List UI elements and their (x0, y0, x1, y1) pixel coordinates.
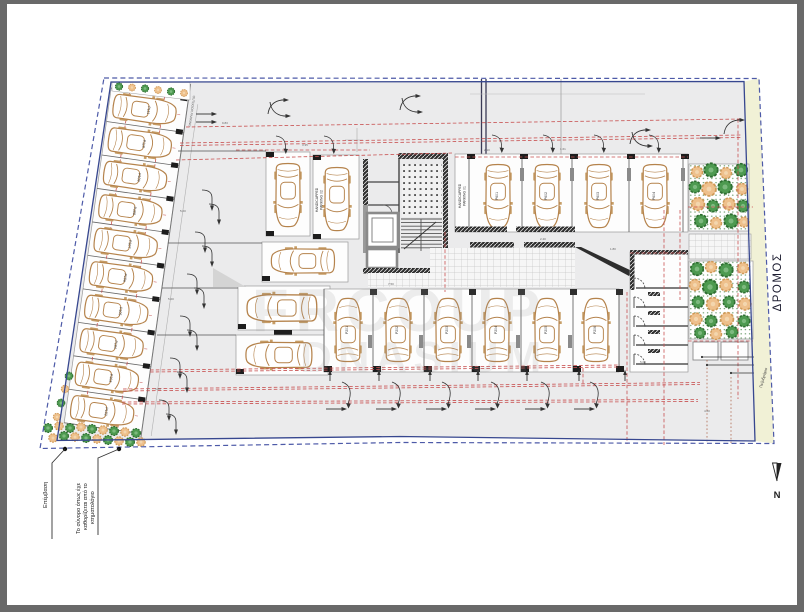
svg-text:9.83: 9.83 (222, 121, 228, 125)
svg-text:5.00: 5.00 (155, 387, 161, 391)
svg-text:HANDICAPPED: HANDICAPPED (315, 187, 319, 212)
svg-text:PARKING 02: PARKING 02 (320, 190, 324, 210)
svg-text:P603: P603 (596, 192, 600, 200)
svg-text:5.00: 5.00 (180, 209, 186, 213)
svg-text:5.00: 5.00 (168, 297, 174, 301)
svg-text:ΔΡOΜOΣ: ΔΡOΜOΣ (772, 253, 784, 312)
svg-text:HANDICAPPED: HANDICAPPED (458, 183, 462, 208)
svg-text:Το σύνορο όπως έχε: Το σύνορο όπως έχε (75, 482, 82, 534)
svg-text:καθορίζεται από το: καθορίζεται από το (82, 483, 89, 530)
svg-text:P602: P602 (544, 192, 548, 200)
svg-text:1.61: 1.61 (560, 147, 566, 151)
svg-text:P206: P206 (593, 326, 597, 334)
svg-text:1.80: 1.80 (610, 247, 616, 251)
svg-text:κτηματολόγιο: κτηματολόγιο (89, 491, 96, 524)
svg-text:2.10: 2.10 (484, 148, 490, 152)
svg-text:P604: P604 (652, 192, 656, 200)
svg-text:P601: P601 (495, 192, 499, 200)
svg-text:5.00: 5.00 (640, 360, 646, 364)
svg-text:4.00: 4.00 (704, 409, 710, 413)
svg-text:Επέμβαση: Επέμβαση (42, 482, 49, 508)
svg-text:N: N (774, 490, 781, 501)
svg-text:DNASIUM: DNASIUM (300, 333, 547, 382)
svg-text:PARKING 01: PARKING 01 (463, 186, 467, 206)
svg-text:3.35: 3.35 (302, 143, 308, 147)
svg-text:2.40: 2.40 (540, 237, 546, 241)
